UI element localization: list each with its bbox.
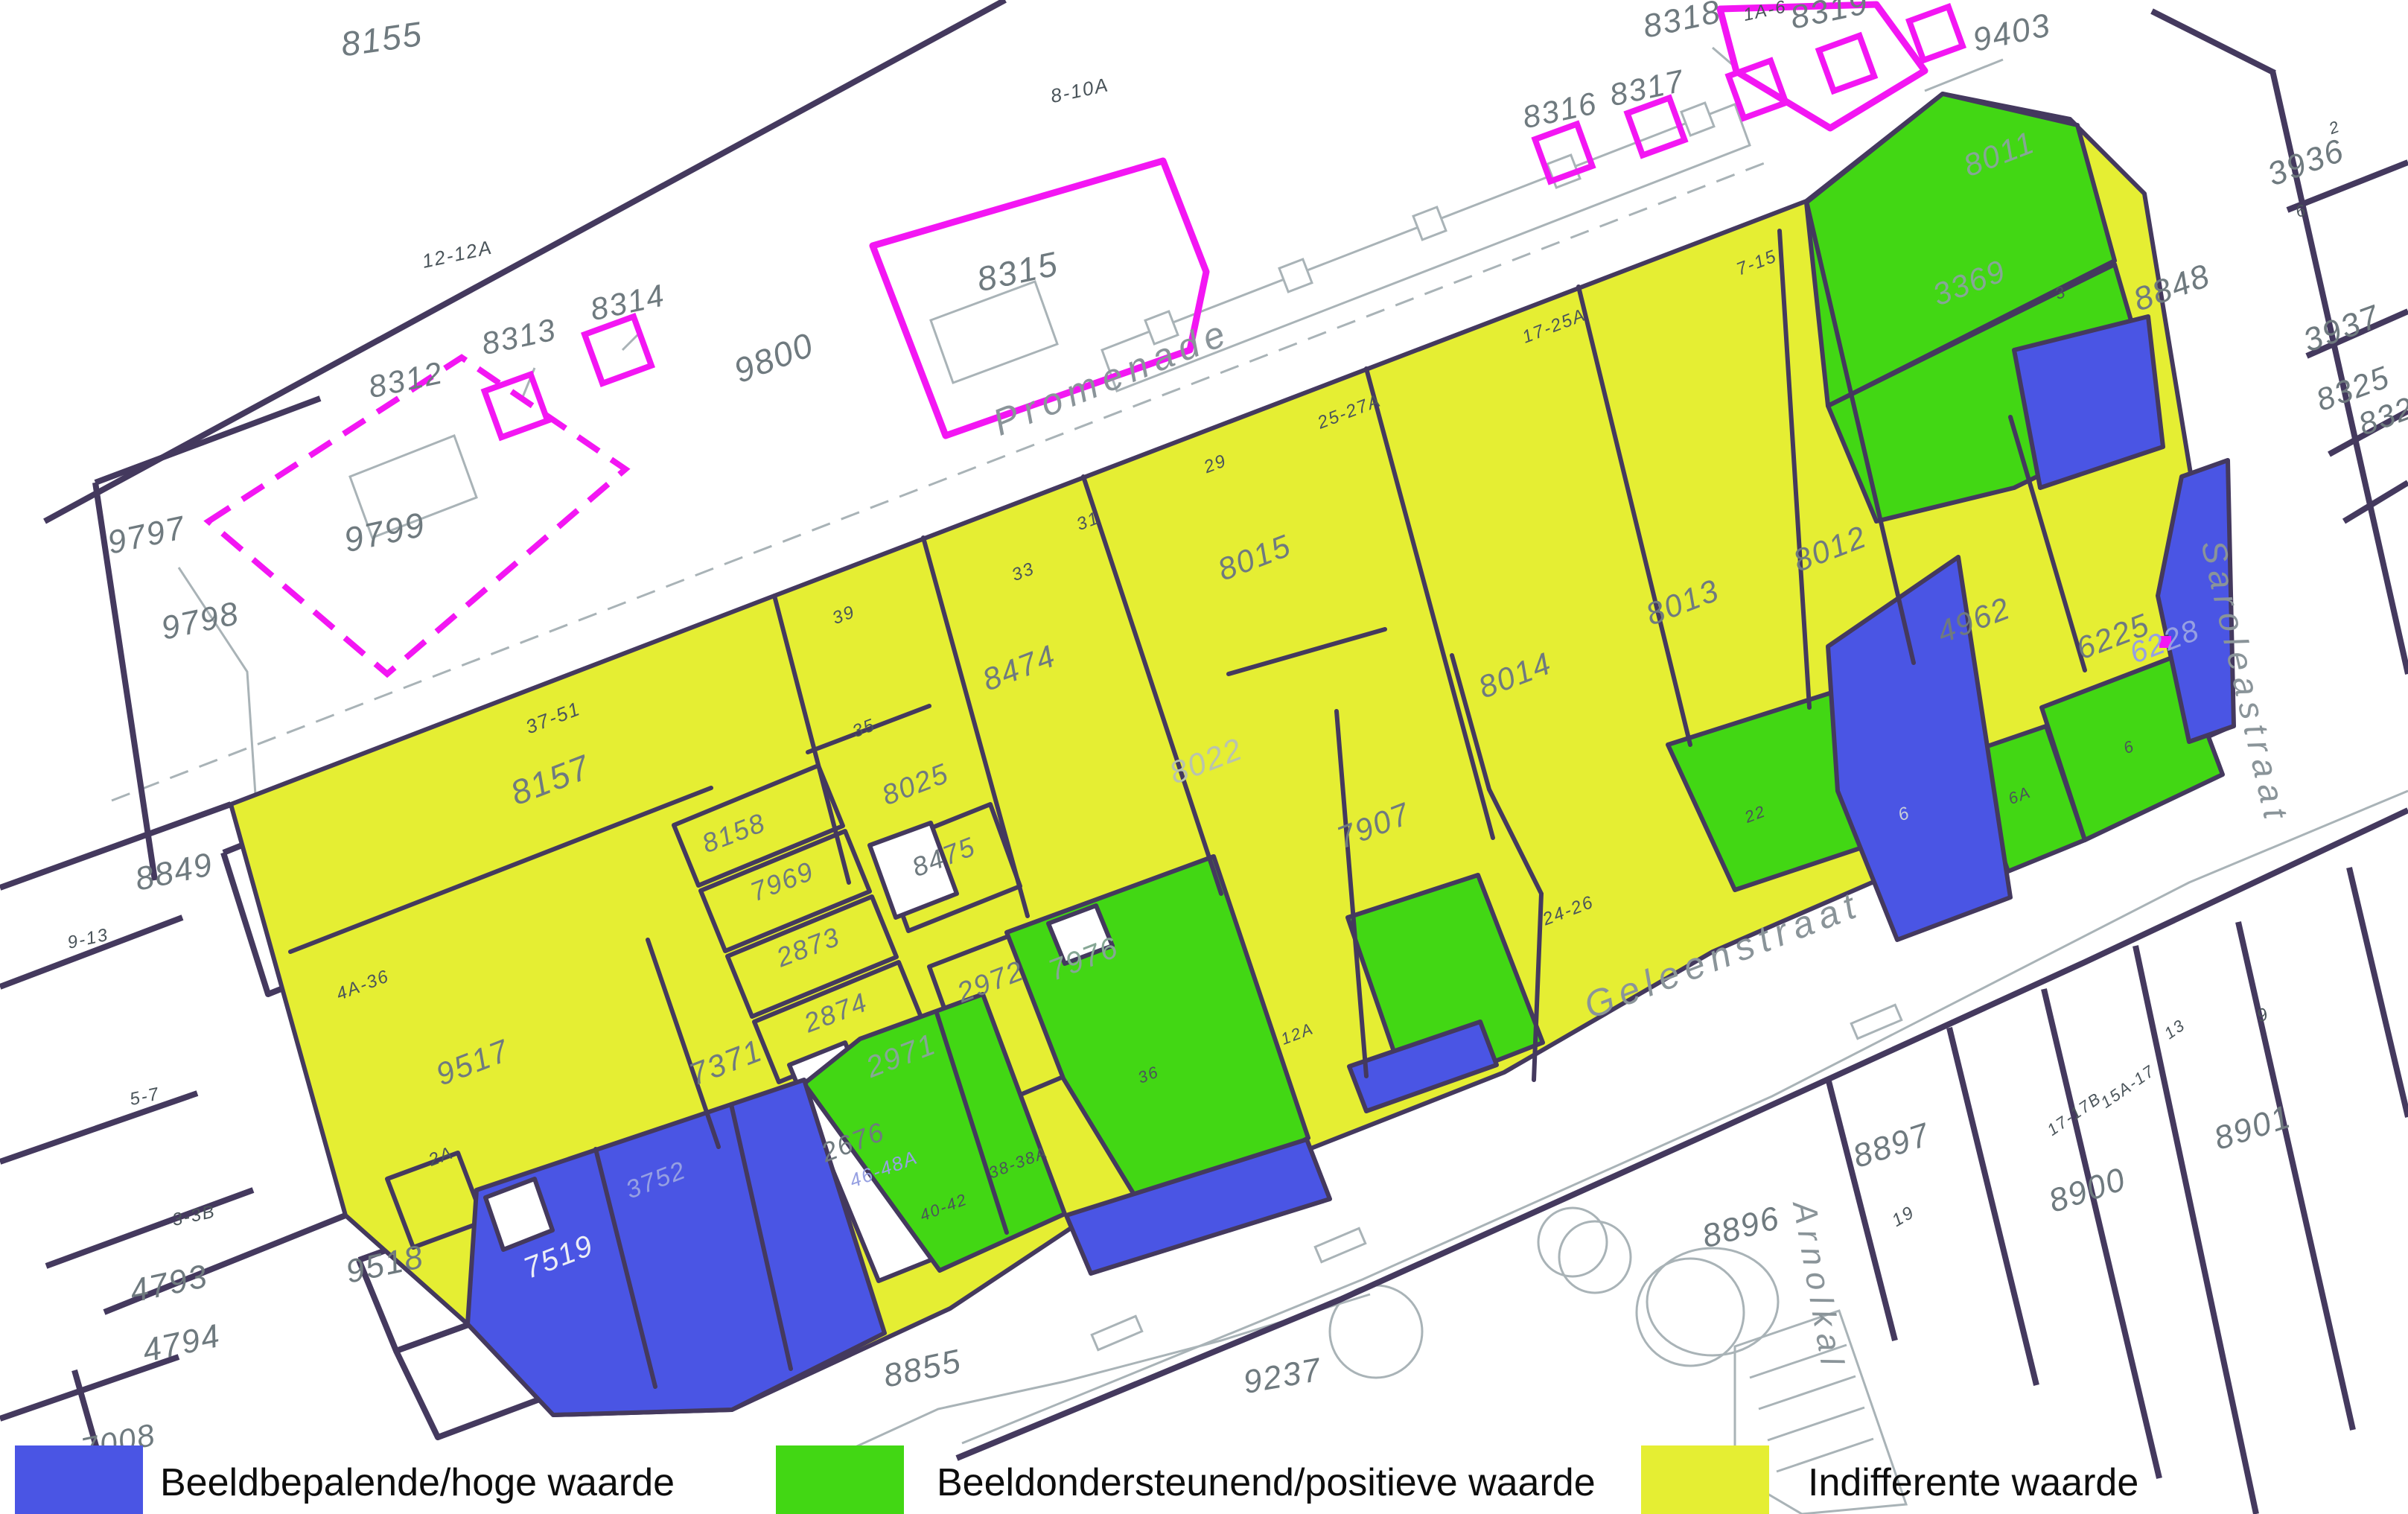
gray-line: [622, 334, 639, 350]
map-label-3936: 3936: [2263, 132, 2349, 193]
map-label-8318: 8318: [1640, 0, 1724, 45]
boundary-line: [2152, 11, 2275, 73]
gray-line: [1925, 60, 2003, 91]
legend-swatch-indifferent-value: [1641, 1445, 1769, 1514]
map-label-9798: 9798: [158, 595, 243, 647]
map-label-8-10A: 8-10A: [1048, 73, 1111, 107]
map-canvas: 8155980083158312831383149797979997988849…: [0, 0, 2408, 1514]
map-label-8313: 8313: [478, 311, 559, 361]
map-label-4793: 4793: [127, 1258, 211, 1310]
map-label-8901: 8901: [2210, 1098, 2296, 1157]
legend-swatch-positive-value: [776, 1445, 904, 1514]
building-outline: [931, 282, 1057, 383]
map-label-8315: 8315: [973, 244, 1062, 299]
map-label-17-17B: 17-17B: [2044, 1089, 2105, 1139]
boundary-line: [45, 0, 1005, 521]
legend-label-indifferent-value: Indifferente waarde: [1808, 1461, 2138, 1504]
map-label-19: 19: [1888, 1202, 1918, 1231]
map-label-9: 9: [2255, 1004, 2272, 1027]
boundary-line: [2135, 946, 2256, 1514]
monument-square: [485, 375, 548, 438]
map-label-8317: 8317: [1606, 63, 1687, 112]
boundary-line: [46, 1190, 253, 1266]
map-label-8155: 8155: [339, 14, 426, 64]
monument-square: [1909, 7, 1963, 60]
tree-outline: [1637, 1259, 1744, 1366]
building-tick: [1413, 207, 1446, 240]
valuation-map-page: 8155980083158312831383149797979997988849…: [0, 0, 2408, 1514]
map-label-8896: 8896: [1698, 1200, 1784, 1256]
map-label-9518: 9518: [343, 1238, 427, 1291]
tree-outline: [1559, 1221, 1631, 1293]
map-label-3-3B: 3-3B: [171, 1201, 217, 1230]
map-label-9797: 9797: [104, 509, 189, 562]
map-label-8855: 8855: [880, 1343, 965, 1395]
map-label-3937: 3937: [2299, 298, 2385, 359]
gray-line: [1768, 1408, 1864, 1440]
map-label-8319: 8319: [1787, 0, 1872, 36]
boundary-line: [2044, 989, 2159, 1478]
boundary-line: [1949, 1028, 2036, 1385]
tree-outline: [1538, 1208, 1607, 1276]
map-label-9403: 9403: [1969, 7, 2054, 59]
boundary-line: [2349, 868, 2408, 1117]
gray-line: [1759, 1376, 1856, 1409]
valuation-map: 8155980083158312831383149797979997988849…: [0, 0, 2408, 1514]
monument-square: [1819, 36, 1874, 91]
legend-swatch-high-value: [15, 1445, 143, 1514]
map-label-9800: 9800: [728, 325, 819, 390]
boundary-line: [2238, 922, 2353, 1430]
building-tick: [1279, 259, 1312, 292]
map-label-1A-6: 1A-6: [1742, 0, 1789, 25]
building-tick: [1681, 103, 1714, 136]
boundary-line: [2344, 483, 2408, 521]
map-label-8849: 8849: [132, 846, 217, 898]
road-marking: [1315, 1228, 1366, 1262]
map-label-9237: 9237: [1240, 1351, 1325, 1401]
boundary-line: [0, 1093, 197, 1162]
map-label-12-12A: 12-12A: [420, 236, 494, 273]
legend-label-high-value: Beeldbepalende/hoge waarde: [160, 1461, 675, 1504]
map-label-13: 13: [2161, 1015, 2189, 1043]
map-label-8897: 8897: [1849, 1116, 1935, 1175]
legend-label-positive-value: Beeldondersteunend/positieve waarde: [937, 1461, 1596, 1504]
street-label-Arnolkal: Arnolkal: [1786, 1197, 1852, 1375]
map-label-8312: 8312: [365, 354, 446, 404]
map-label-8316: 8316: [1519, 85, 1600, 135]
map-label-8314: 8314: [587, 277, 668, 327]
map-label-15A-17: 15A-17: [2098, 1061, 2159, 1112]
map-label-4794: 4794: [139, 1317, 224, 1370]
street-label-Promenade: Promenade: [987, 311, 1238, 444]
map-label-9799: 9799: [340, 504, 429, 559]
road-marking: [1092, 1316, 1142, 1349]
